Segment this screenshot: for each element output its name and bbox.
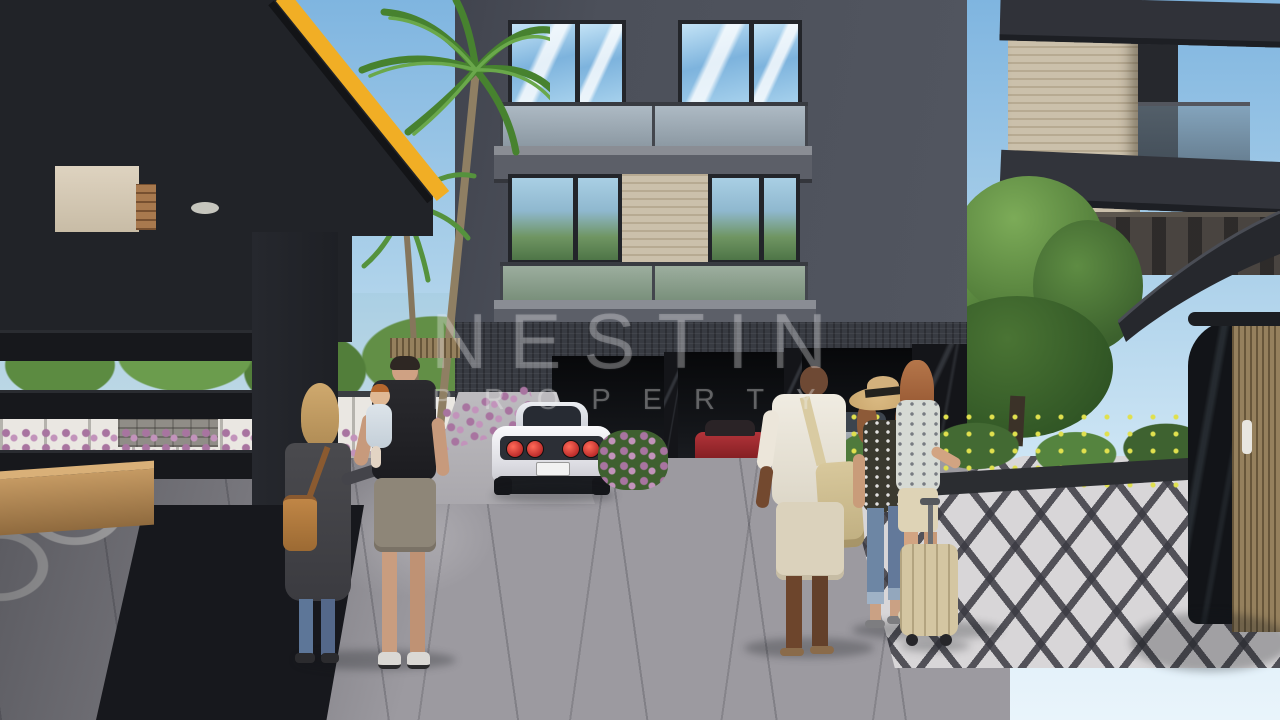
sandal xyxy=(780,648,804,656)
suitcase-wheel xyxy=(940,634,952,646)
car-shadow xyxy=(492,488,616,503)
kiosk-shadow xyxy=(1130,612,1280,672)
window-pane xyxy=(580,24,622,102)
tower-balcony-glass xyxy=(1138,102,1250,164)
man-forearm xyxy=(755,465,774,508)
tower-slab-upper xyxy=(999,0,1280,48)
window-pane xyxy=(754,24,798,102)
beige-shorts xyxy=(776,502,844,580)
suitcase-handle xyxy=(928,502,933,550)
man-leg-dark xyxy=(812,576,828,646)
man-sneaker xyxy=(378,652,401,669)
kiosk-brick-panel xyxy=(136,184,156,230)
window-pane xyxy=(712,178,759,260)
man-leg xyxy=(410,552,425,652)
jeans-leg xyxy=(867,508,884,604)
man-leg-dark xyxy=(786,576,802,648)
car-taillight xyxy=(506,440,524,458)
suitcase-grip xyxy=(920,498,940,505)
wood-counter xyxy=(0,461,154,536)
watermark-subtitle: PROPERTY xyxy=(0,384,1280,417)
ankle xyxy=(870,604,881,620)
far-flower-hedge xyxy=(598,430,668,490)
leather-bag xyxy=(283,495,317,551)
watermark-title: NESTIN xyxy=(0,296,1280,387)
woman-jeans-leg xyxy=(321,599,335,655)
man-shorts xyxy=(374,478,436,552)
window-lower-right xyxy=(708,174,800,264)
window-pane xyxy=(578,178,618,260)
window-upper-right xyxy=(678,20,802,106)
sandal xyxy=(810,646,834,654)
woman-arm xyxy=(853,454,865,508)
travertine-panel xyxy=(622,174,708,264)
car-license-plate xyxy=(536,462,570,476)
man-leg xyxy=(382,552,397,652)
window-pane xyxy=(682,24,749,102)
car-taillight xyxy=(562,440,580,458)
sandal xyxy=(865,620,885,628)
woman-jeans-leg xyxy=(299,599,313,655)
window-pane xyxy=(764,178,796,260)
suitcase-body xyxy=(900,544,958,636)
render-canvas: NESTIN PROPERTY xyxy=(0,0,1280,720)
woman-shoe xyxy=(295,653,315,663)
kiosk-counter-panel xyxy=(55,166,139,232)
car-taillight xyxy=(526,440,544,458)
woman-shoe xyxy=(321,653,339,663)
suitcase-wheel xyxy=(906,634,918,646)
rolling-suitcase xyxy=(898,498,962,648)
kiosk-towel xyxy=(1242,420,1252,454)
toddler-leg xyxy=(371,446,381,468)
man-sneaker xyxy=(407,652,430,669)
ceiling-light xyxy=(191,202,219,214)
woman-with-bag xyxy=(283,383,357,663)
